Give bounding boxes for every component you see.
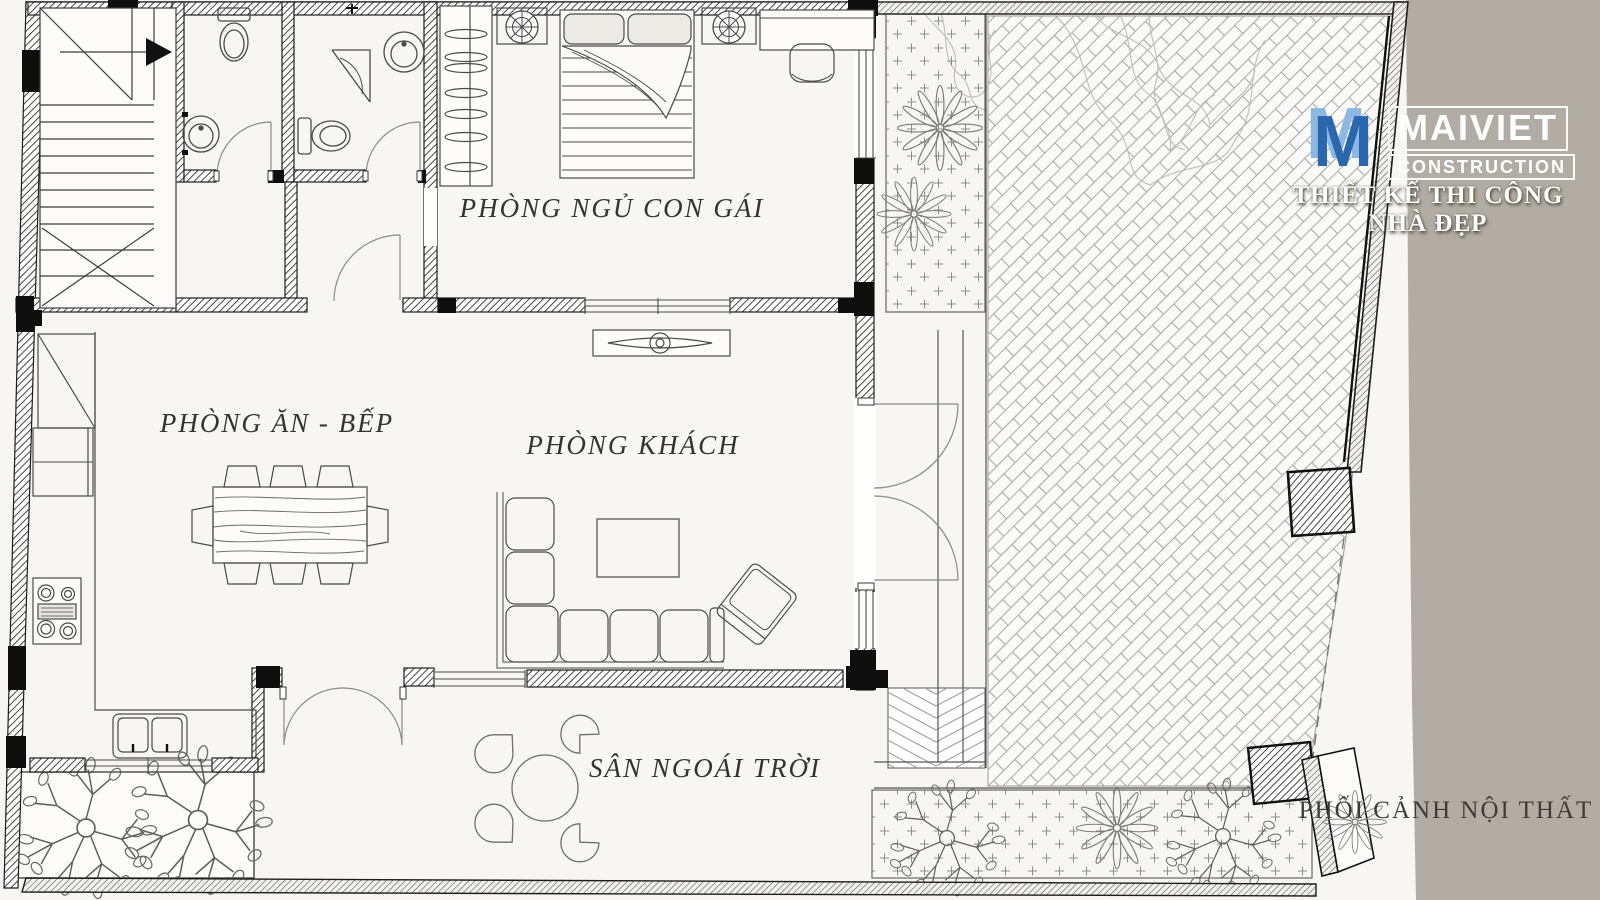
lamp xyxy=(506,11,538,43)
room-label-bedroom: PHÒNG NGỦ CON GÁI xyxy=(459,193,765,223)
floor-plan-page: PHÒNG NGỦ CON GÁI PHÒNG ĂN - BẾP PHÒNG K… xyxy=(0,0,1600,900)
bed xyxy=(560,10,694,178)
logo-m-dark: M xyxy=(1313,106,1373,178)
stove xyxy=(33,578,81,644)
lamp xyxy=(713,11,745,43)
company-tagline: THIẾT KẾ THI CÔNG NHÀ ĐẸP xyxy=(1272,182,1584,238)
staircase xyxy=(40,8,176,308)
plan-caption: PHỐI CẢNH NỘI THẤT xyxy=(1296,797,1596,825)
company-logo: M M MAIVIET CONSTRUCTION xyxy=(1306,100,1596,192)
logo-text: MAIVIET CONSTRUCTION xyxy=(1388,106,1575,180)
room-label-kitchen-dining: PHÒNG ĂN - BẾP xyxy=(159,407,394,438)
wardrobe xyxy=(440,6,492,186)
gate-post xyxy=(1288,468,1354,536)
logo-m-icon: M M xyxy=(1306,104,1384,176)
room-label-living: PHÒNG KHÁCH xyxy=(525,430,739,460)
logo-name: MAIVIET xyxy=(1388,106,1568,151)
room-label-yard: SÂN NGOÁI TRỜI xyxy=(589,753,821,783)
logo-subtitle: CONSTRUCTION xyxy=(1388,154,1575,180)
planting-strip-right xyxy=(877,14,985,312)
tv-cabinet xyxy=(593,330,730,356)
